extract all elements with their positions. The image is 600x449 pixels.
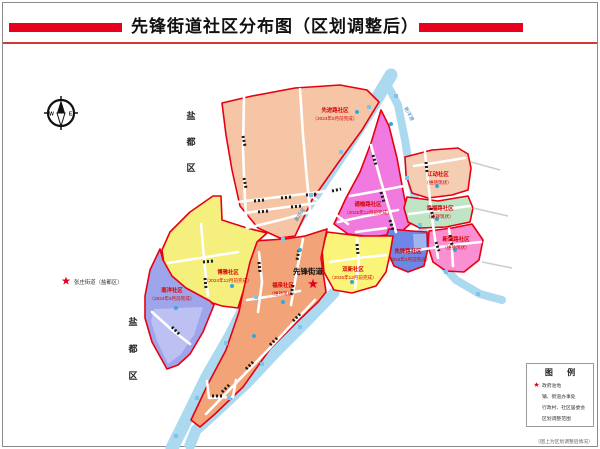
star-icon: ★ [531,382,542,389]
legend-item-committee: 行政村、社区居委会 [531,402,589,413]
region-label: 南洋社区 [161,286,183,294]
legend-item-government: ★ 政府驻地 [531,380,589,391]
legend: 图 例 ★ 政府驻地 镇、街道办事处 行政村、社区居委会 区划调整范围 [526,363,594,427]
compass-icon: W E [44,96,78,130]
region-label: 江动社区 [427,170,449,178]
neighbor-street-label: 张庄街道（盐都区） [74,278,123,286]
street-office-label: 先锋街道 [293,266,323,276]
svg-text:区: 区 [128,371,137,381]
region-note: （维持现状） [426,213,454,220]
region-note: （2024年6月前完成） [313,115,358,122]
compass-west: W [49,112,54,118]
region-note: （2025年12月前完成） [329,274,377,281]
region-note: （维持现状） [424,179,452,186]
svg-text:盐: 盐 [128,316,137,327]
map-page: 先锋街道社区分布图（区划调整后） [0,0,600,449]
region-label: 幸福路社区 [427,204,455,212]
legend-item-town-office: 镇、街道办事处 [531,391,589,402]
region-label: 新城路社区 [443,235,471,243]
svg-text:都: 都 [127,343,137,354]
region-note: （2024年12月前完成） [204,277,252,284]
svg-text:区: 区 [186,163,195,173]
region-label: 通榆路社区 [355,200,383,208]
region-note: （2025年12月前完成） [344,209,392,216]
region-note: （2024年4月前完成） [386,256,431,263]
legend-title: 图 例 [531,367,589,378]
regions-group [145,85,483,427]
map-caption: （图上为区划调整后情况） [535,438,593,445]
region-label: 双新社区 [342,265,364,273]
region-note: （2024年6月前完成） [150,295,195,302]
region-label: 先进路社区 [322,106,350,114]
region-label: 博雅社区 [217,268,239,276]
region-xianfenglu-light-part [413,234,426,250]
region-note: （维持现状） [442,244,470,251]
district-map: 先进路社区 （2024年6月前完成） 通榆路社区 （2025年12月前完成） 江… [0,0,600,449]
svg-text:都: 都 [185,136,195,147]
region-label: 福泉社区 [271,281,294,289]
region-note: （维持现状） [269,290,297,297]
legend-item-boundary: 区划调整范围 [531,413,589,424]
neighbor-street-marker: 张庄街道（盐都区） [62,277,123,287]
region-label: 先锋路社区 [395,247,423,255]
neighbor-star-icon [62,277,71,285]
svg-text:盐: 盐 [186,110,195,121]
